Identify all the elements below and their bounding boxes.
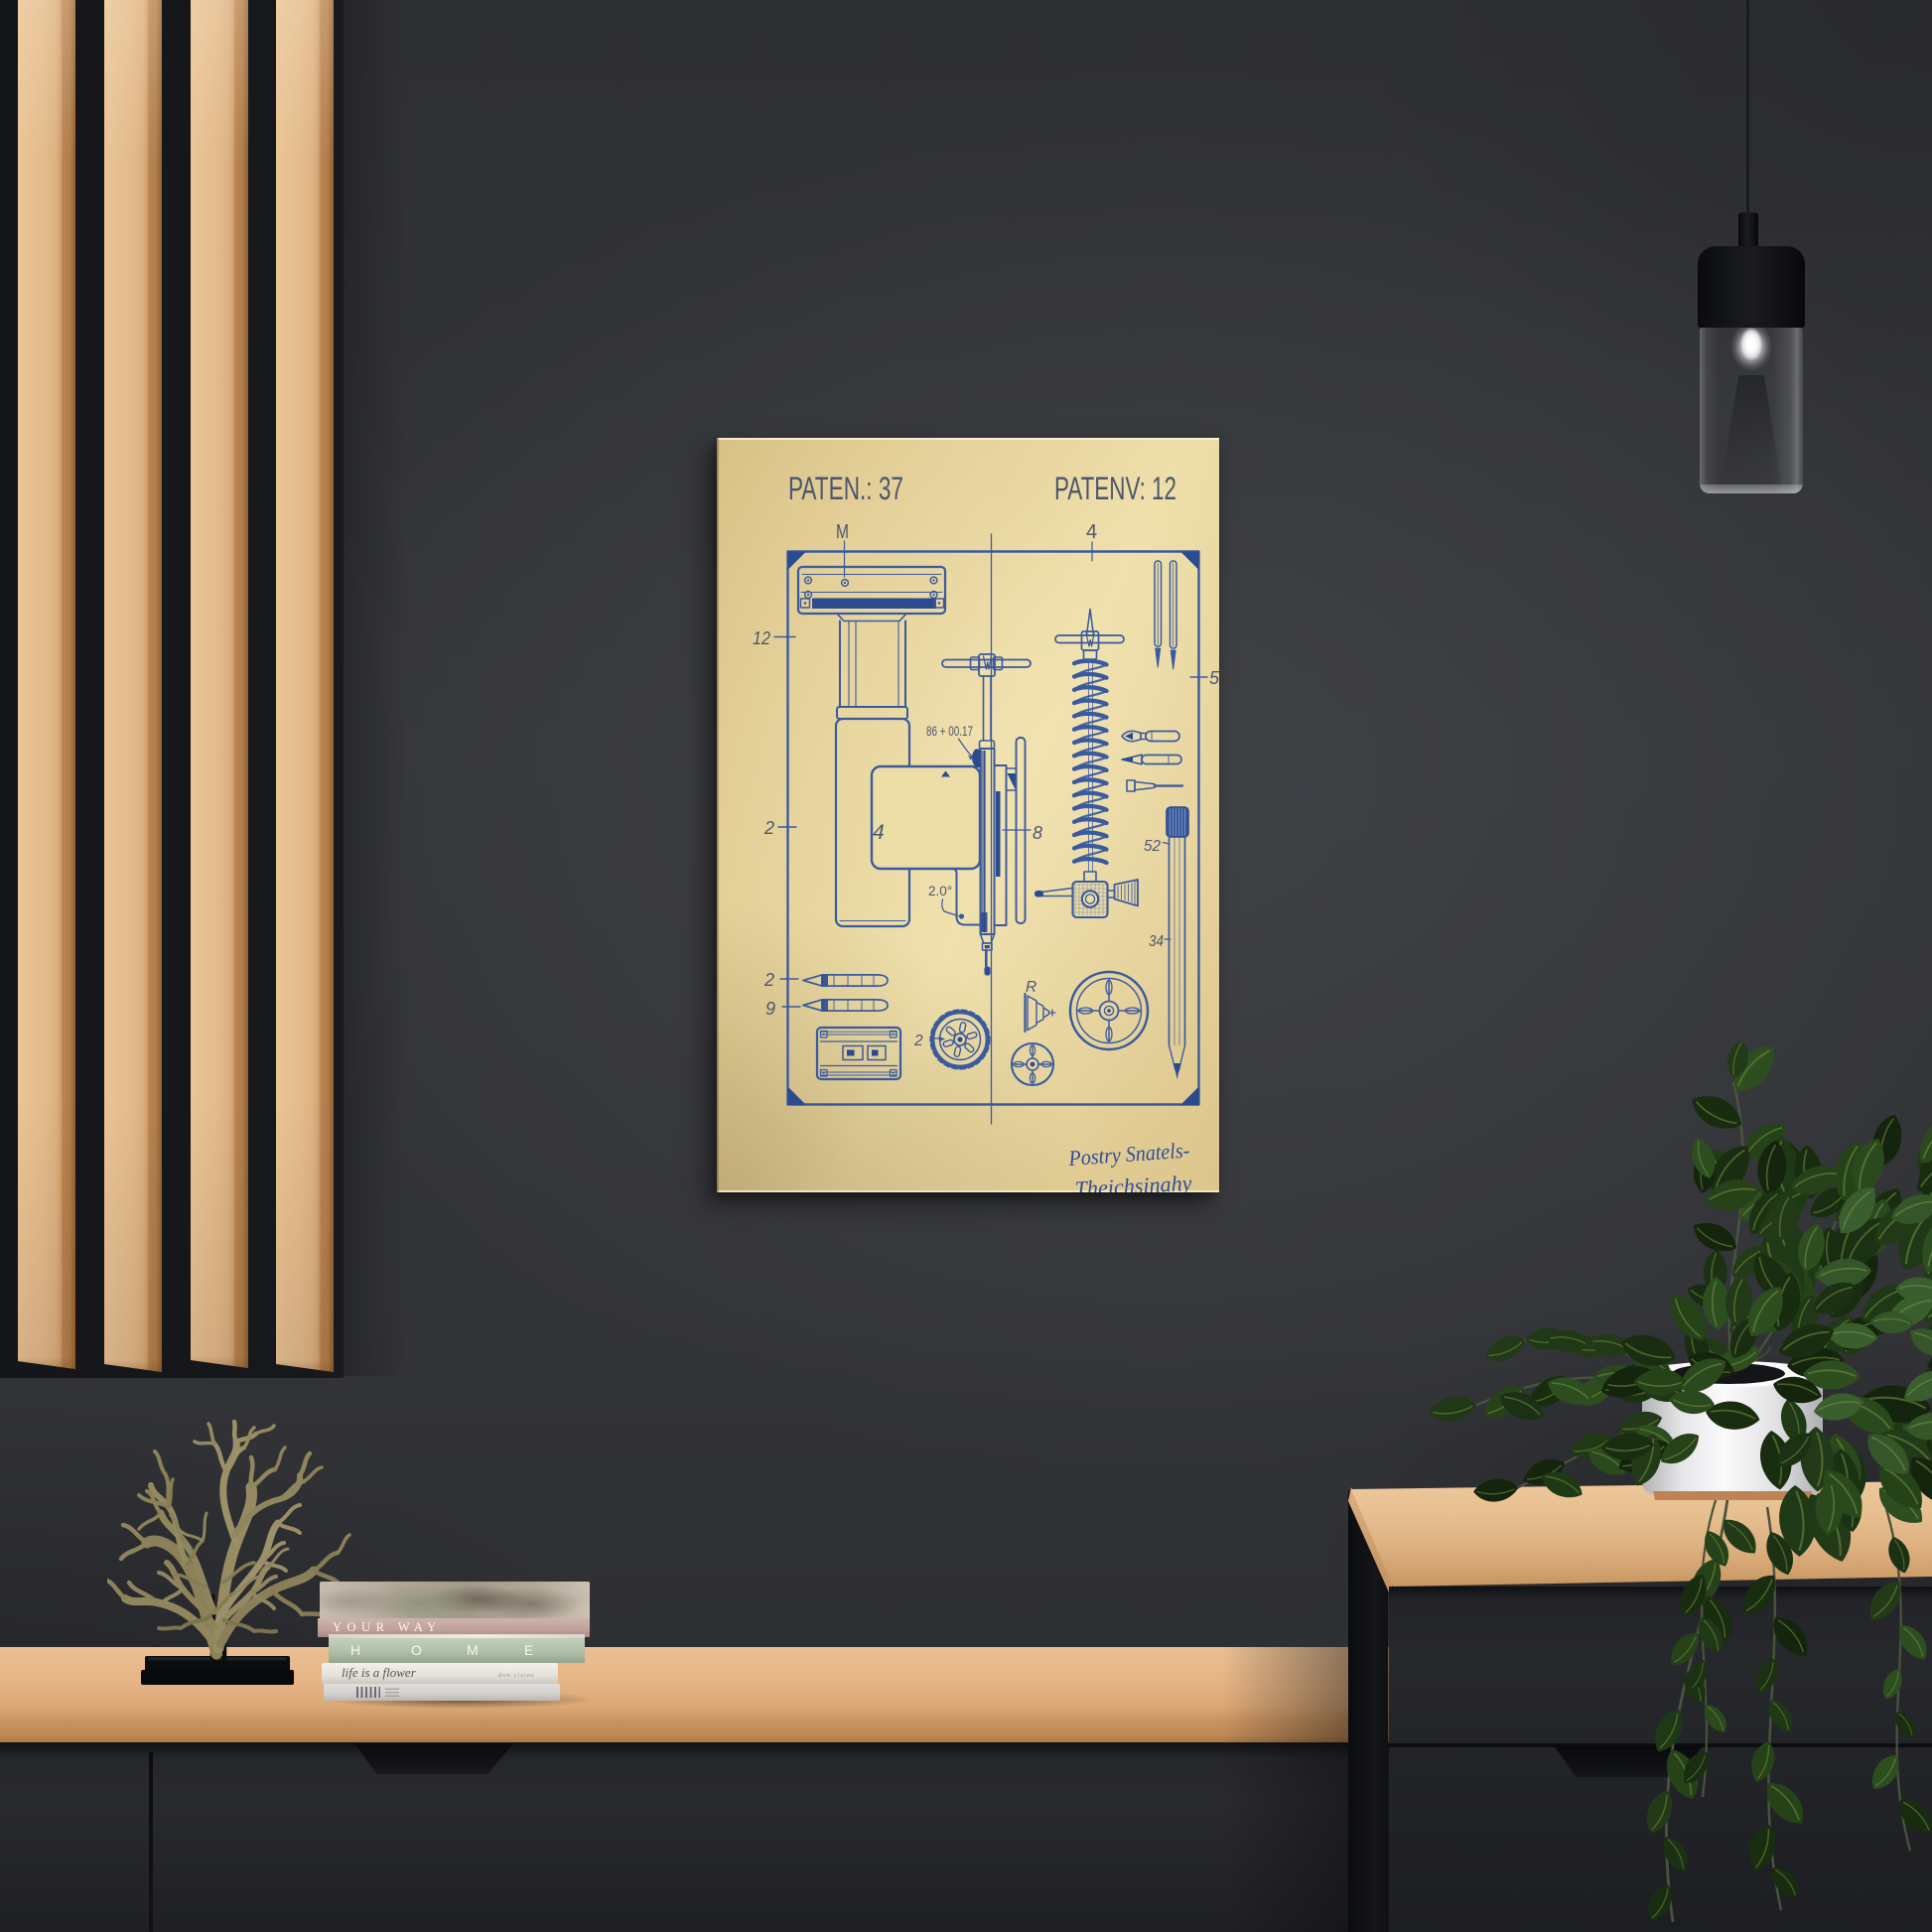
svg-text:52: 52: [1144, 838, 1161, 855]
svg-text:PATENV: 12: PATENV: 12: [1054, 471, 1176, 506]
svg-text:86 + 00.17: 86 + 00.17: [926, 724, 973, 739]
svg-text:5: 5: [1209, 668, 1219, 688]
svg-text:9: 9: [765, 999, 775, 1019]
svg-text:34: 34: [1149, 933, 1164, 950]
svg-text:M: M: [836, 521, 849, 543]
svg-text:4: 4: [873, 821, 885, 844]
svg-text:4: 4: [1086, 521, 1097, 543]
svg-text:8: 8: [1033, 823, 1042, 843]
svg-text:R: R: [1026, 979, 1036, 996]
svg-text:2: 2: [763, 970, 774, 990]
svg-text:PATEN.: 37: PATEN.: 37: [788, 471, 903, 506]
svg-text:Theichsinahy: Theichsinahy: [1074, 1171, 1192, 1192]
svg-text:12: 12: [753, 628, 770, 648]
svg-text:2: 2: [913, 1033, 923, 1049]
svg-text:2.0°: 2.0°: [928, 884, 952, 898]
svg-text:Postry Snatels-: Postry Snatels-: [1067, 1138, 1190, 1172]
svg-text:2: 2: [763, 818, 774, 838]
